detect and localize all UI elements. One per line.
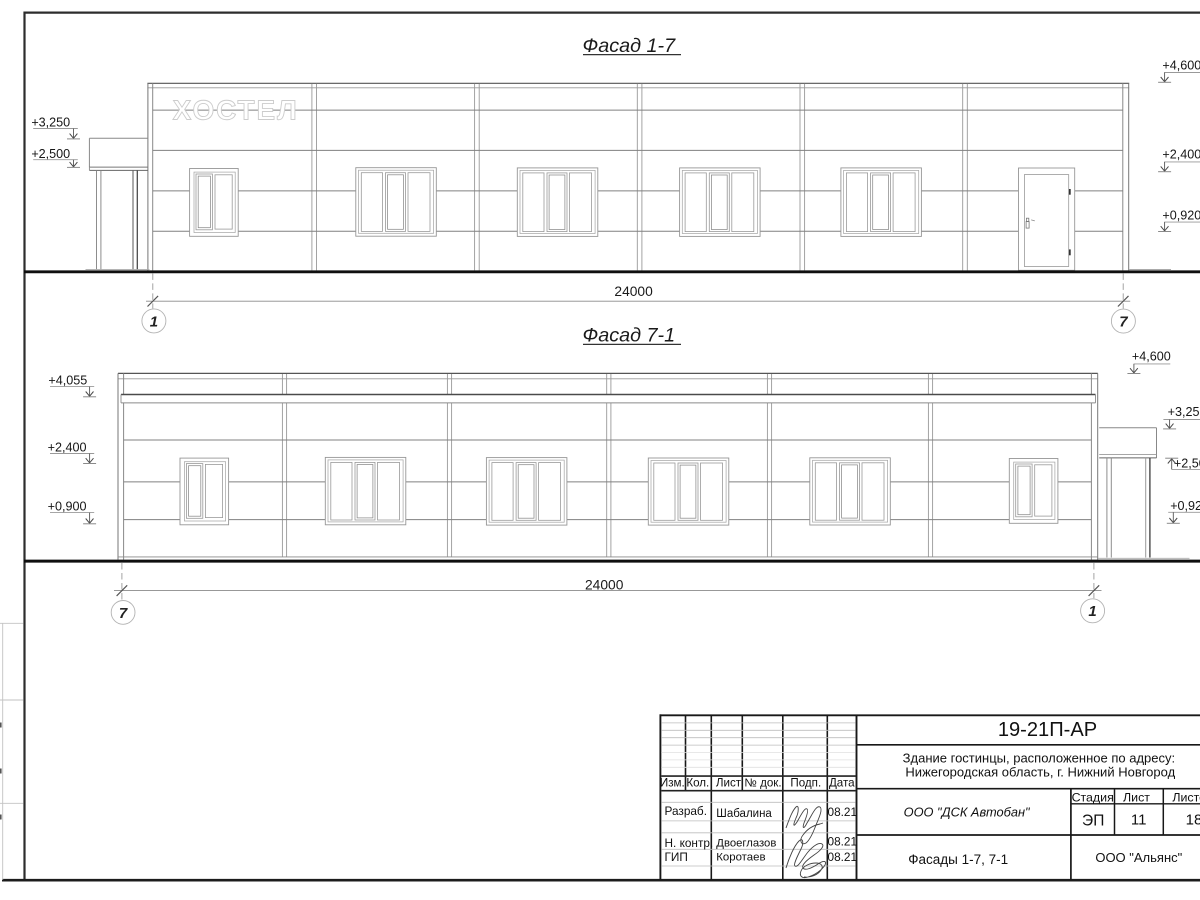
svg-text:+4,600: +4,600 xyxy=(1162,58,1200,72)
svg-text:Фасад 7-1: Фасад 7-1 xyxy=(582,325,675,347)
svg-text:Здание гостинцы, расположенное: Здание гостинцы, расположенное по адресу… xyxy=(903,750,1175,765)
svg-text:ЭП: ЭП xyxy=(1082,812,1104,829)
svg-text:Фасады 1-7, 7-1: Фасады 1-7, 7-1 xyxy=(908,852,1008,867)
svg-text:+0,920: +0,920 xyxy=(1162,208,1200,222)
svg-text:Стадия: Стадия xyxy=(1072,790,1114,804)
svg-text:+2,400: +2,400 xyxy=(1162,147,1200,161)
svg-text:+3,250: +3,250 xyxy=(1168,405,1200,419)
svg-text:18: 18 xyxy=(1186,811,1200,828)
svg-text:+0,900: +0,900 xyxy=(48,500,87,514)
svg-text:Лист: Лист xyxy=(716,777,742,790)
svg-text:ГИП: ГИП xyxy=(665,850,688,864)
svg-text:Фасад 1-7: Фасад 1-7 xyxy=(582,35,676,57)
svg-text:11: 11 xyxy=(1131,811,1147,828)
svg-text:ООО "ДСК Автобан": ООО "ДСК Автобан" xyxy=(904,805,1031,820)
svg-text:Кол.: Кол. xyxy=(686,777,709,790)
svg-text:+0,920: +0,920 xyxy=(1170,499,1200,513)
svg-text:Шабалина: Шабалина xyxy=(716,808,772,820)
svg-text:ХОСТЕЛ: ХОСТЕЛ xyxy=(173,95,299,126)
svg-text:+4,600: +4,600 xyxy=(1132,350,1171,364)
svg-text:24000: 24000 xyxy=(614,284,653,299)
svg-text:Лист: Лист xyxy=(1123,790,1150,804)
svg-text:Нижегородская область, г. Нижн: Нижегородская область, г. Нижний Новгоро… xyxy=(905,764,1175,779)
svg-text:Дата: Дата xyxy=(829,777,855,790)
svg-text:Изм.: Изм. xyxy=(660,777,685,790)
svg-text:ООО "Альянс": ООО "Альянс" xyxy=(1095,850,1182,865)
svg-text:+2,500: +2,500 xyxy=(31,147,70,161)
svg-text:7: 7 xyxy=(119,605,128,622)
svg-text:1: 1 xyxy=(150,313,158,330)
svg-text:+3,250: +3,250 xyxy=(31,115,70,129)
svg-text:+2,400: +2,400 xyxy=(48,441,87,455)
svg-text:7: 7 xyxy=(1119,314,1128,331)
svg-text:Подп.: Подп. xyxy=(790,777,821,790)
svg-text:№ док.: № док. xyxy=(744,777,781,790)
svg-text:Н. контр.: Н. контр. xyxy=(665,836,714,850)
svg-text:Коротаев: Коротаев xyxy=(716,851,765,863)
svg-text:Двоеглазов: Двоеглазов xyxy=(716,838,776,850)
svg-text:08.21: 08.21 xyxy=(828,805,858,819)
svg-text:19-21П-АР: 19-21П-АР xyxy=(998,719,1097,741)
svg-text:Листов: Листов xyxy=(1172,790,1200,804)
svg-text:Разраб.: Разраб. xyxy=(665,804,707,818)
svg-text:08.21: 08.21 xyxy=(828,834,858,848)
svg-text:+4,055: +4,055 xyxy=(48,374,87,388)
svg-text:1: 1 xyxy=(1088,603,1096,620)
svg-text:24000: 24000 xyxy=(585,578,624,593)
svg-text:08.21: 08.21 xyxy=(828,850,858,864)
